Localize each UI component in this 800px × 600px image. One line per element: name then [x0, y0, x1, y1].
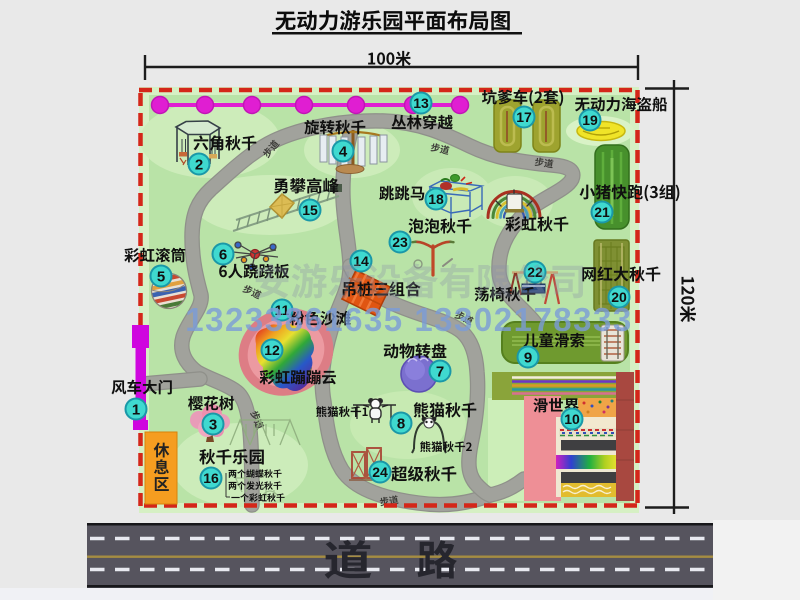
svg-text:2: 2 — [195, 156, 203, 173]
svg-text:13: 13 — [413, 95, 429, 111]
svg-text:15: 15 — [302, 202, 318, 218]
svg-text:8: 8 — [397, 415, 405, 432]
svg-text:16: 16 — [203, 470, 219, 486]
svg-text:9: 9 — [524, 349, 532, 366]
svg-text:17: 17 — [516, 109, 532, 125]
svg-text:12: 12 — [264, 342, 280, 358]
svg-text:6: 6 — [219, 246, 227, 263]
svg-text:4: 4 — [339, 143, 348, 160]
svg-text:13233861635 13302178333: 13233861635 13302178333 — [185, 301, 632, 338]
svg-text:3: 3 — [209, 416, 217, 433]
svg-text:21: 21 — [594, 204, 610, 220]
svg-text:7: 7 — [436, 363, 444, 380]
svg-text:19: 19 — [582, 112, 598, 128]
svg-text:1: 1 — [132, 401, 140, 418]
svg-text:24: 24 — [372, 464, 388, 480]
svg-text:18: 18 — [428, 191, 444, 207]
svg-text:10: 10 — [564, 411, 580, 427]
svg-text:5: 5 — [157, 268, 165, 285]
svg-text:23: 23 — [392, 234, 408, 250]
